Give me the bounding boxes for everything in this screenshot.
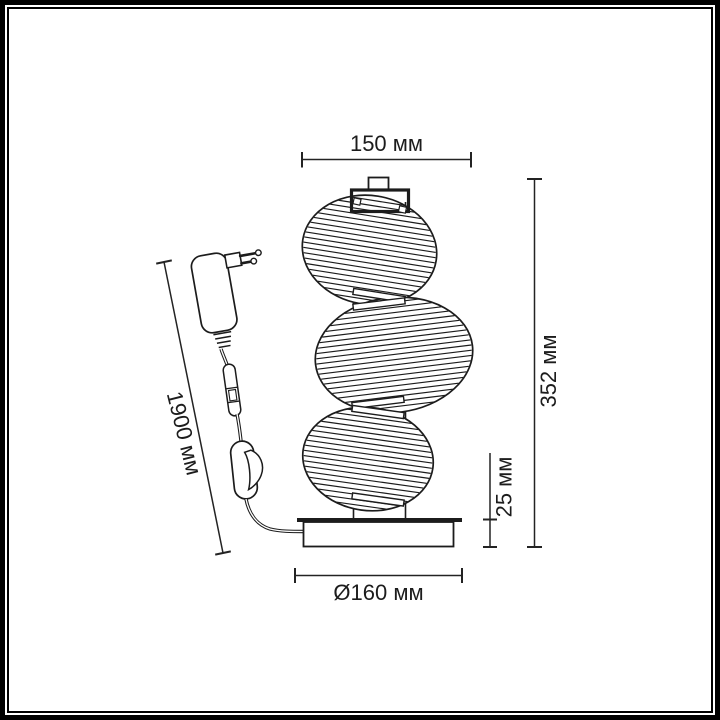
dim-total-height-label: 352 мм	[536, 334, 561, 407]
dim-base-height-label: 25 мм	[492, 457, 517, 518]
lamp-base	[297, 520, 462, 547]
cord-segment-upper	[221, 349, 228, 366]
dimension-drawing: 150 мм 352 мм 25 мм Ø160 мм 1900 мм	[0, 0, 720, 720]
diagram-page: { "drawing": { "kind": "technical-dimens…	[0, 0, 720, 720]
dim-base-diameter-label: Ø160 мм	[333, 580, 423, 605]
cord-segment-middle	[237, 414, 241, 441]
cord-segment-lower	[246, 499, 304, 532]
cord-ferrule	[222, 363, 241, 416]
dim-top-width-label: 150 мм	[350, 131, 423, 156]
dim-cord-length-label: 1900 мм	[162, 389, 207, 478]
inline-switch	[230, 439, 266, 500]
power-adapter	[190, 245, 276, 349]
